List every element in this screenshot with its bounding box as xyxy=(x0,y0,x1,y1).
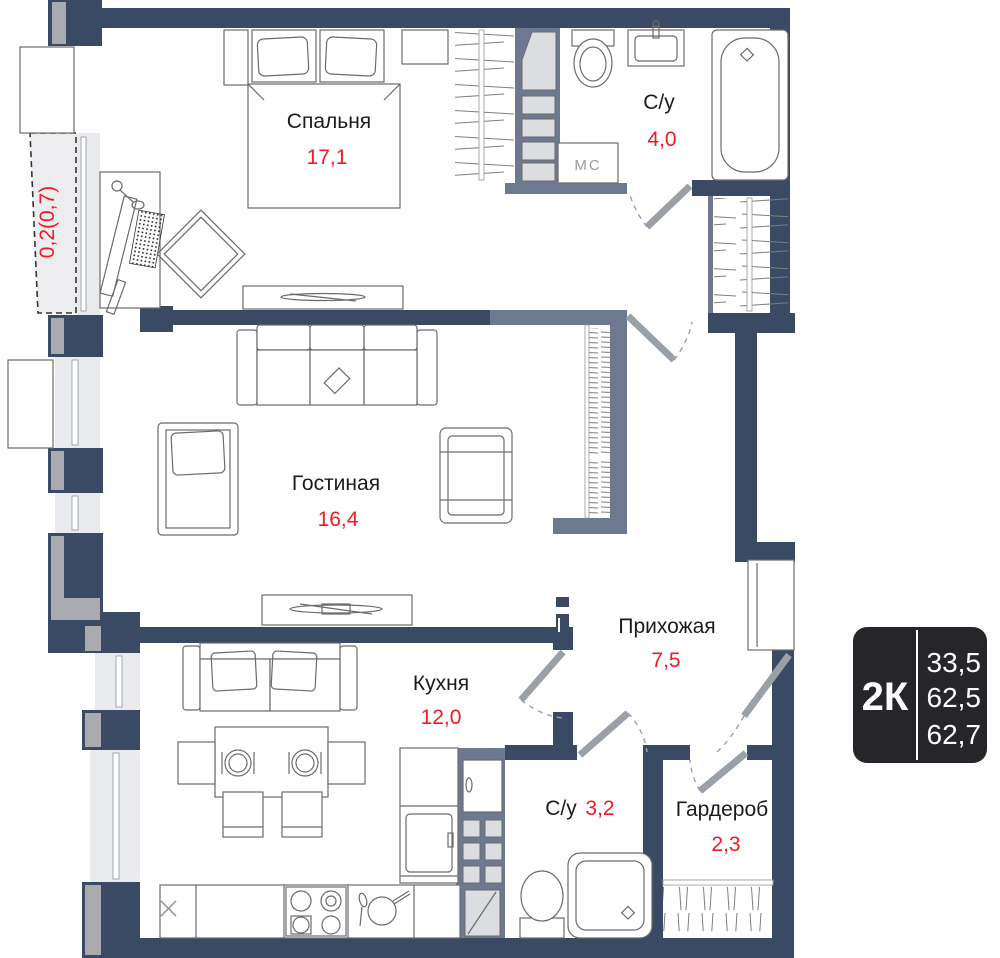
door-bathroom-main xyxy=(629,186,690,227)
hall-closet xyxy=(714,198,788,311)
hallway-label: Прихожая xyxy=(618,615,715,638)
wall-hooks xyxy=(556,597,569,636)
bedroom-room: Спальня 17,1 xyxy=(100,30,448,314)
kitchen-label: Кухня xyxy=(413,672,469,695)
door-wardrobe xyxy=(690,753,746,791)
hallway-area: 7,5 xyxy=(651,649,680,672)
ac-basket-top xyxy=(20,47,74,133)
door-kitchen xyxy=(521,652,563,718)
lounge-chair xyxy=(440,428,512,523)
toilet-main xyxy=(572,30,614,87)
wardrobe-room: Гардероб 2,3 xyxy=(663,753,773,931)
sofa xyxy=(237,325,437,405)
badge-type: 2К xyxy=(862,675,909,719)
badge-value-3: 62,7 xyxy=(927,719,982,750)
apartment-badge: 2К 33,5 62,5 62,7 xyxy=(853,627,987,763)
wardrobe-label: Гардероб xyxy=(676,798,768,821)
bathtub xyxy=(712,30,788,180)
balcony-area: 0,2(0,7) xyxy=(36,186,59,258)
ac-basket-mid xyxy=(8,360,53,448)
kitchen-area: 12,0 xyxy=(421,706,462,729)
living-area: 16,4 xyxy=(318,508,359,531)
desk xyxy=(100,172,164,314)
pouf xyxy=(157,210,245,298)
bedroom-tv-stand xyxy=(243,286,403,309)
floor-plan-page: 0,2(0,7) xyxy=(0,0,1000,958)
bathroom-main: МС С/у 4,0 xyxy=(558,21,788,227)
toilet-small xyxy=(520,871,564,938)
shelf-niche xyxy=(585,325,611,518)
door-living-hall xyxy=(628,316,692,360)
bathroom-main-label: С/у xyxy=(643,91,675,114)
badge-value-2: 62,5 xyxy=(927,682,982,713)
bedroom-area: 17,1 xyxy=(307,146,348,169)
living-label: Гостиная xyxy=(292,472,380,495)
washing-machine-label: МС xyxy=(574,157,601,174)
fridge-cabinets xyxy=(400,748,458,883)
wardrobe-area: 2,3 xyxy=(711,833,740,856)
kitchen-counter xyxy=(160,885,460,938)
bedroom-wardrobe xyxy=(455,30,556,181)
floor-plan-svg: 0,2(0,7) xyxy=(0,0,1000,958)
washing-machine-cabinet: МС xyxy=(558,143,618,183)
door-bathroom-small xyxy=(580,713,647,755)
bathroom-small-label: С/у xyxy=(545,797,577,820)
kitchen-sofa xyxy=(183,643,357,711)
living-tv-stand xyxy=(262,595,412,625)
bathroom-small-area: 3,2 xyxy=(585,797,614,820)
bathroom-main-area: 4,0 xyxy=(647,128,676,151)
armchair xyxy=(158,423,238,535)
shower xyxy=(568,853,652,938)
badge-value-1: 33,5 xyxy=(927,647,982,678)
dining-table xyxy=(178,727,365,837)
hallway-room: Прихожая 7,5 xyxy=(556,560,794,753)
bedroom-label: Спальня xyxy=(287,110,371,133)
